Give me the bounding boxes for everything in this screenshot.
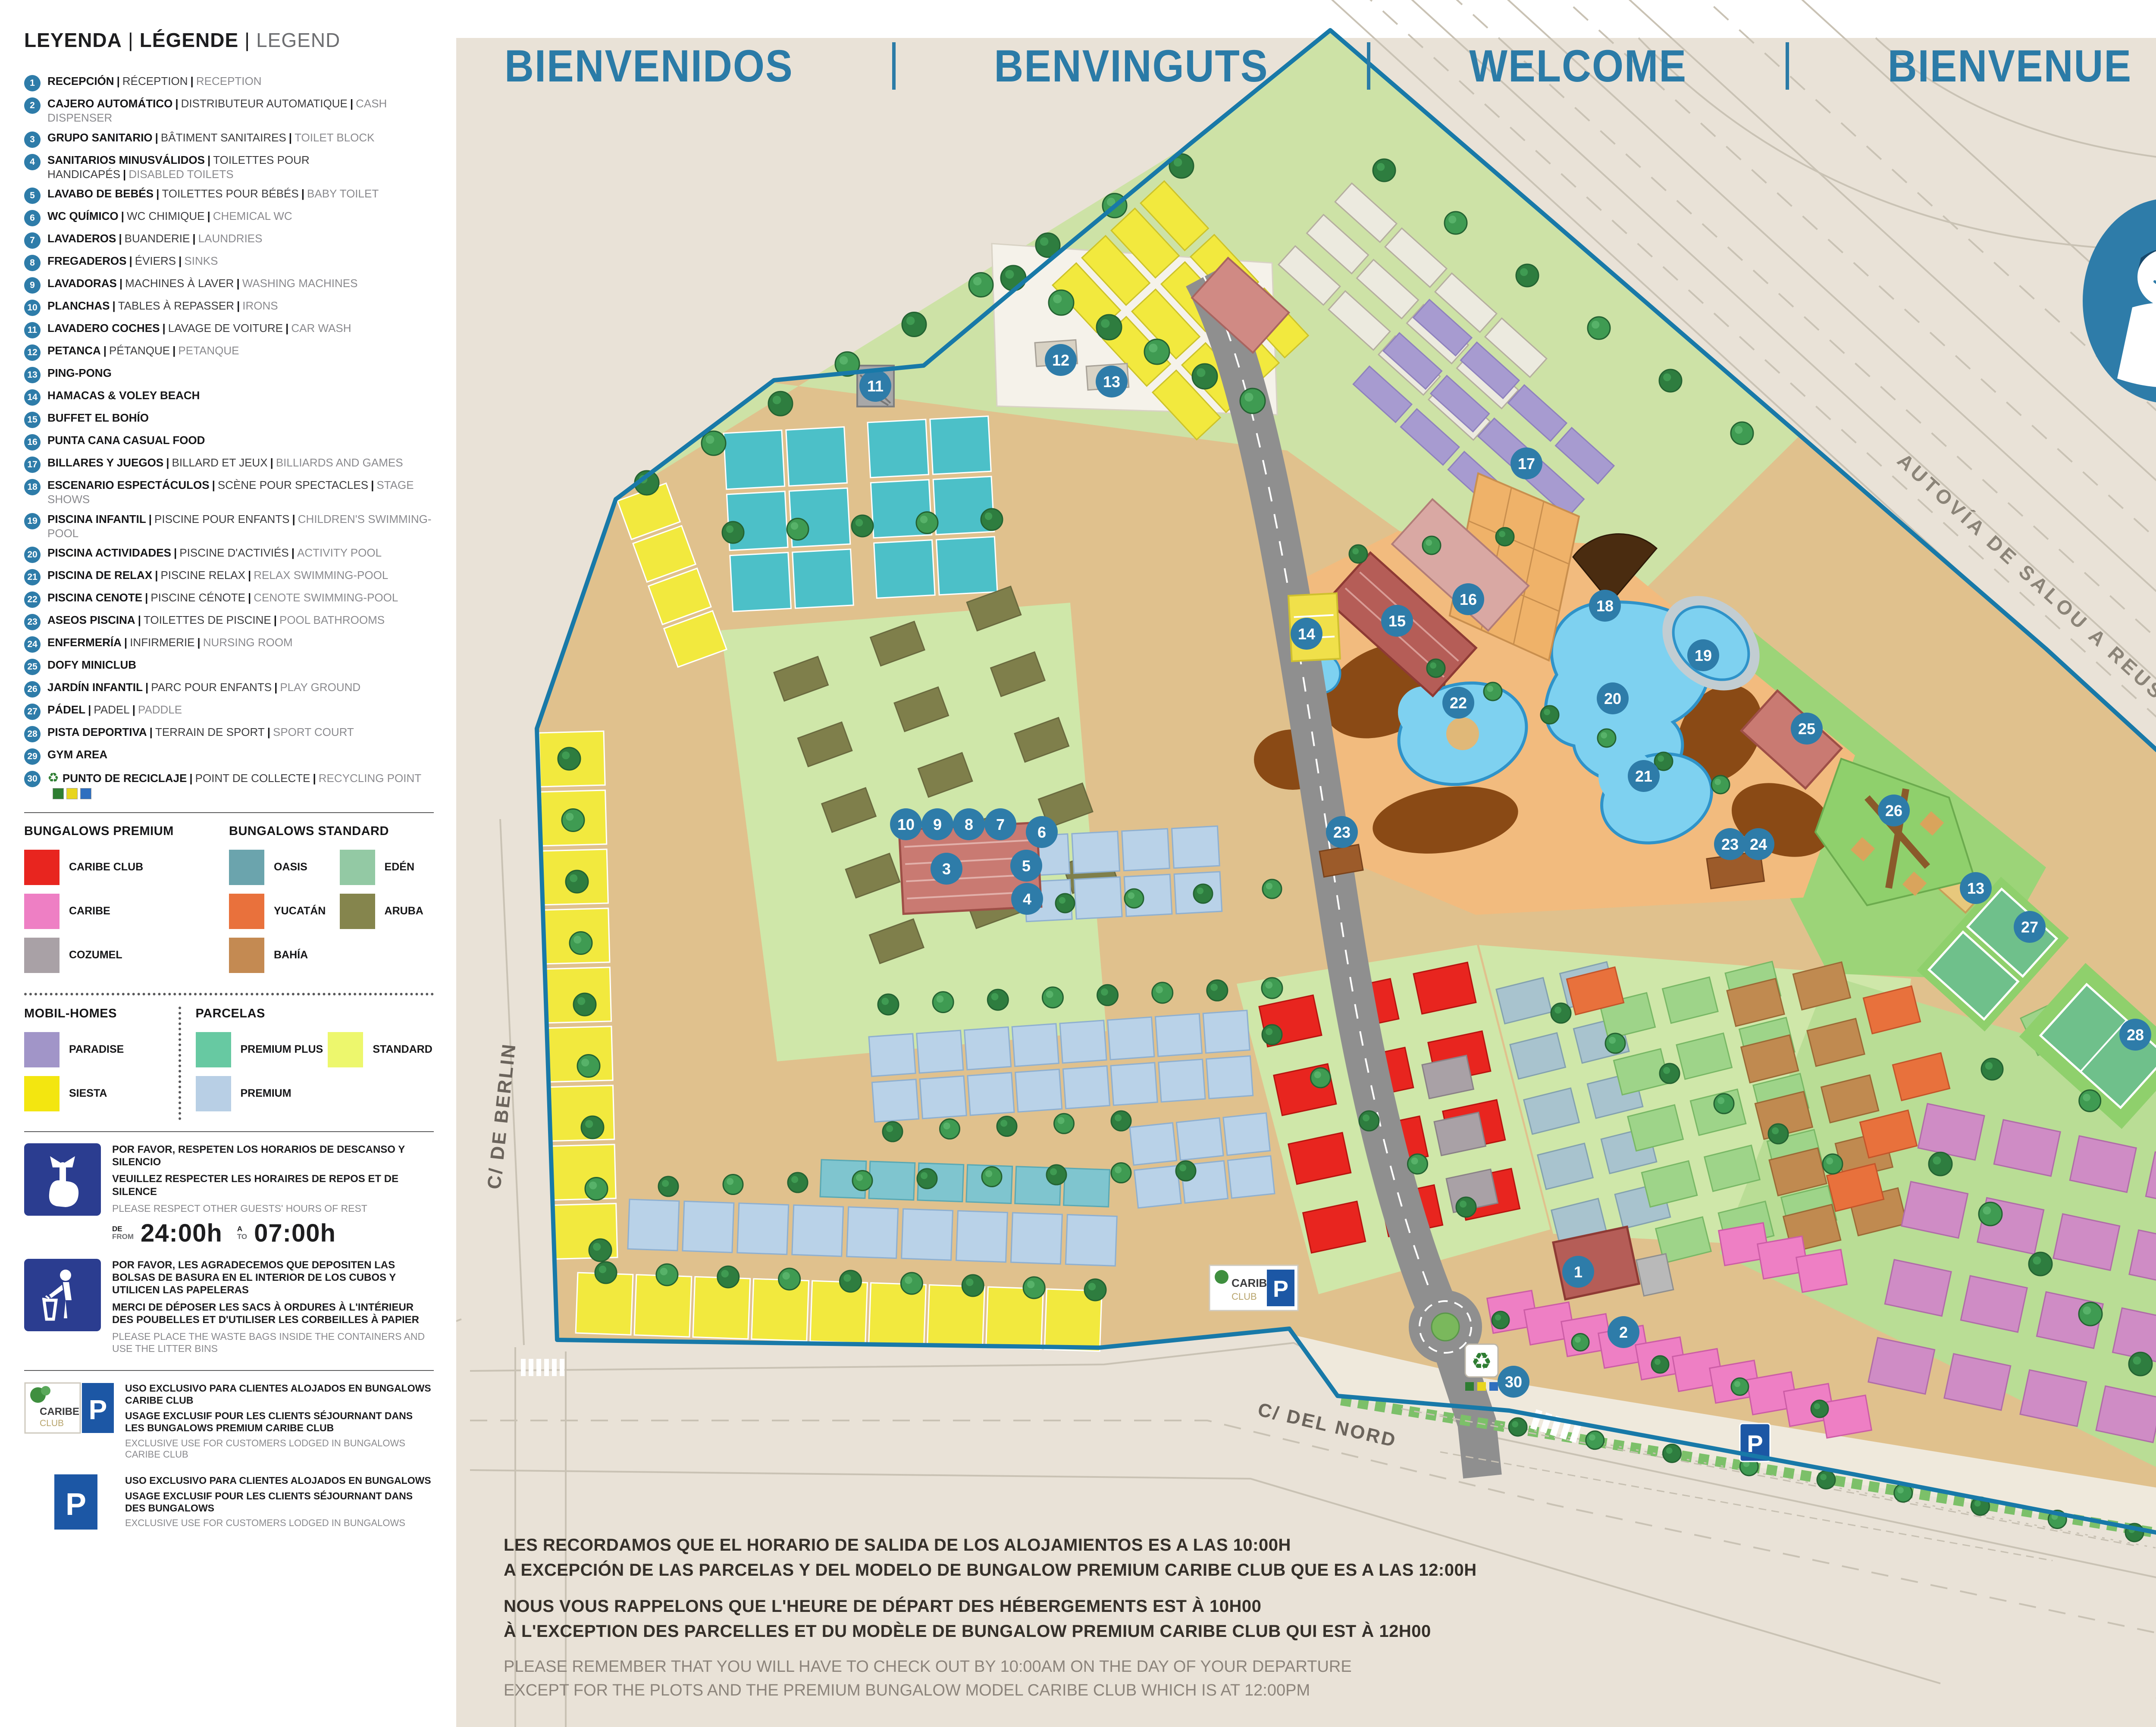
legend-item-number: 29 xyxy=(24,748,41,765)
map-marker-number: 1 xyxy=(1574,1263,1583,1281)
tree-icon xyxy=(1516,264,1539,287)
legend-item-number: 5 xyxy=(24,188,41,204)
siesta-logo-icon xyxy=(2081,197,2156,404)
legend-item-label: JARDÍN INFANTIL|PARC POUR ENFANTS|PLAY G… xyxy=(47,680,360,695)
map-marker-number: 14 xyxy=(1298,625,1315,643)
legend-list: 1RECEPCIÓN|RÉCEPTION|RECEPTION2CAJERO AU… xyxy=(24,74,434,801)
map-marker: 22 xyxy=(1442,687,1474,719)
bungalows-parking-rule: P USO EXCLUSIVO PARA CLIENTES ALOJADOS E… xyxy=(24,1474,434,1533)
tree-icon xyxy=(787,519,808,540)
legend-item-number: 6 xyxy=(24,210,41,226)
tree-icon xyxy=(779,1268,800,1290)
legend-item-number: 15 xyxy=(24,412,41,428)
color-swatch-label: BAHÍA xyxy=(274,949,308,961)
tree-icon xyxy=(2029,1252,2052,1276)
map-marker: 30 xyxy=(1498,1366,1529,1398)
legend-item-number: 27 xyxy=(24,704,41,720)
legend-item: 14HAMACAS & VOLEY BEACH xyxy=(24,388,434,406)
tree-icon xyxy=(981,509,1003,530)
map-marker: 6 xyxy=(1026,816,1058,848)
legend-item-label: ♻PUNTO DE RECICLAJE|POINT DE COLLECTE|RE… xyxy=(47,770,434,801)
tree-icon xyxy=(933,992,953,1013)
color-legend-row: CARIBE CLUB xyxy=(24,850,229,885)
map-marker: 20 xyxy=(1597,682,1629,714)
legend-item: 13PING-PONG xyxy=(24,366,434,383)
legend-item-label: PISCINA DE RELAX|PISCINE RELAX|RELAX SWI… xyxy=(47,568,388,582)
legend-item: 29GYM AREA xyxy=(24,748,434,765)
map-marker: 4 xyxy=(1011,883,1043,915)
tree-icon xyxy=(987,989,1008,1010)
tree-icon xyxy=(1660,1064,1680,1083)
legend-item-label: PETANCA|PÉTANQUE|PETANQUE xyxy=(47,344,239,358)
tree-icon xyxy=(1311,1068,1331,1088)
banner-word: BIENVENUE xyxy=(1888,40,2132,92)
map-marker: 24 xyxy=(1742,828,1774,860)
color-swatch xyxy=(24,1076,60,1111)
map-marker-number: 18 xyxy=(1596,597,1614,615)
tree-icon xyxy=(1262,1025,1282,1045)
legend-item-number: 1 xyxy=(24,75,41,91)
color-legend-row: PREMIUM PLUS xyxy=(196,1032,325,1067)
legend-item-label: PUNTA CANA CASUAL FOOD xyxy=(47,433,205,447)
tree-icon xyxy=(982,1167,1002,1187)
legend-item-label: CAJERO AUTOMÁTICO|DISTRIBUTEUR AUTOMATIQ… xyxy=(47,97,434,125)
legend-item-label: BUFFET EL BOHÍO xyxy=(47,411,149,425)
legend-item-label: PISCINA CENOTE|PISCINE CÉNOTE|CENOTE SWI… xyxy=(47,591,398,605)
legend-item-label: LAVADERO COCHES|LAVAGE DE VOITURE|CAR WA… xyxy=(47,321,351,335)
quiet-sign-icon xyxy=(24,1143,101,1248)
legend-item-number: 13 xyxy=(24,367,41,383)
quiet-en: PLEASE RESPECT OTHER GUESTS' HOURS OF RE… xyxy=(112,1202,434,1214)
tree-icon xyxy=(1240,388,1265,413)
leaf-icon xyxy=(1215,1270,1228,1284)
legend-item-number: 22 xyxy=(24,591,41,608)
tree-icon xyxy=(1981,1058,2003,1080)
tree-icon xyxy=(723,1175,743,1195)
map-marker-number: 24 xyxy=(1750,835,1767,853)
tree-icon xyxy=(1484,682,1502,701)
tree-icon xyxy=(558,748,580,770)
legend-item: 5LAVABO DE BEBÉS|TOILETTES POUR BÉBÉS|BA… xyxy=(24,187,434,204)
color-swatch-label: STANDARD xyxy=(373,1043,432,1056)
map-marker: 17 xyxy=(1510,447,1542,479)
legend-item-number: 17 xyxy=(24,457,41,473)
plot-cell xyxy=(1796,1250,1847,1292)
legend-item: 21PISCINA DE RELAX|PISCINE RELAX|RELAX S… xyxy=(24,568,434,585)
map-marker: 26 xyxy=(1878,795,1910,826)
map-marker-number: 6 xyxy=(1037,823,1046,841)
legend-item-label: LAVADORAS|MACHINES À LAVER|WASHING MACHI… xyxy=(47,276,357,291)
legend-item: 28PISTA DEPORTIVA|TERRAIN DE SPORT|SPORT… xyxy=(24,725,434,742)
map-marker: 25 xyxy=(1791,713,1823,745)
tree-icon xyxy=(997,1117,1017,1136)
legend-item-number: 25 xyxy=(24,659,41,675)
banner-word: WELCOME xyxy=(1469,40,1687,92)
legend-item: 2CAJERO AUTOMÁTICO|DISTRIBUTEUR AUTOMATI… xyxy=(24,97,434,125)
tree-icon xyxy=(2129,1352,2152,1376)
tree-icon xyxy=(1823,1154,1843,1174)
map-marker-number: 13 xyxy=(1967,879,1984,897)
tree-icon xyxy=(878,994,899,1015)
banner-separator xyxy=(1367,42,1370,90)
legend-item: 30♻PUNTO DE RECICLAJE|POINT DE COLLECTE|… xyxy=(24,770,434,801)
resort-map-poster: CARIBE CLUB P P ♻ AUTOVÍA DE SALOU A REU… xyxy=(0,0,2156,1727)
quiet-hours-notice: POR FAVOR, RESPETEN LOS HORARIOS DE DESC… xyxy=(24,1143,434,1248)
color-swatch-label: SIESTA xyxy=(69,1087,107,1100)
recycle-icon: ♻ xyxy=(47,771,59,785)
svg-text:P: P xyxy=(89,1394,107,1425)
legend-item: 4SANITARIOS MINUSVÁLIDOS|TOILETTES POUR … xyxy=(24,153,434,182)
legend-item: 18ESCENARIO ESPECTÁCULOS|SCÈNE POUR SPEC… xyxy=(24,478,434,507)
legend-item: 20PISCINA ACTIVIDADES|PISCINE D'ACTIVIÉS… xyxy=(24,546,434,563)
legend-item: 24ENFERMERÍA|INFIRMERIE|NURSING ROOM xyxy=(24,635,434,653)
legend-item: 17BILLARES Y JUEGOS|BILLARD ET JEUX|BILL… xyxy=(24,456,434,473)
legend-item-label: WC QUÍMICO|WC CHIMIQUE|CHEMICAL WC xyxy=(47,209,292,223)
legend-item-number: 9 xyxy=(24,277,41,294)
parking-sign-caribe: CARIBE CLUB P xyxy=(1210,1265,1298,1311)
tree-icon xyxy=(1659,369,1682,392)
legend-item-label: GRUPO SANITARIO|BÂTIMENT SANITAIRES|TOIL… xyxy=(47,131,375,145)
color-swatch xyxy=(24,1032,60,1067)
litter-sign-icon xyxy=(24,1259,101,1359)
legend-item: 7LAVADEROS|BUANDERIE|LAUNDRIES xyxy=(24,232,434,249)
tree-icon xyxy=(1049,290,1074,315)
checkout-en-line2: EXCEPT FOR THE PLOTS AND THE PREMIUM BUN… xyxy=(504,1680,1659,1701)
color-swatch xyxy=(340,850,375,885)
map-marker: 11 xyxy=(859,370,891,402)
legend-item: 19PISCINA INFANTIL|PISCINE POUR ENFANTS|… xyxy=(24,512,434,541)
tree-icon xyxy=(1711,776,1730,794)
tree-icon xyxy=(1714,1094,1734,1114)
color-swatch xyxy=(229,938,264,973)
tree-icon xyxy=(595,1262,617,1283)
svg-text:CLUB: CLUB xyxy=(40,1418,64,1428)
tree-icon xyxy=(1054,1114,1074,1133)
legend-item: 11LAVADERO COCHES|LAVAGE DE VOITURE|CAR … xyxy=(24,321,434,338)
tree-icon xyxy=(2079,1302,2102,1326)
plot-cell xyxy=(1821,1395,1872,1438)
legend-item-label: PLANCHAS|TABLES À REPASSER|IRONS xyxy=(47,299,278,313)
legend-sidebar: LEYENDA|LÉGENDE|LEGEND 1RECEPCIÓN|RÉCEPT… xyxy=(0,0,456,1727)
legend-item-number: 3 xyxy=(24,131,41,148)
svg-text:CLUB: CLUB xyxy=(1232,1291,1257,1302)
tree-icon xyxy=(1373,159,1395,181)
legend-item-number: 7 xyxy=(24,232,41,249)
legend-item-number: 28 xyxy=(24,726,41,742)
map-marker: 19 xyxy=(1687,639,1719,671)
legend-item: 27PÁDEL|PADEL|PADDLE xyxy=(24,703,434,720)
color-swatch-label: PARADISE xyxy=(69,1043,124,1056)
mobil-homes-title: MOBIL-HOMES xyxy=(24,1007,176,1021)
tree-icon xyxy=(1598,729,1616,747)
color-swatch-label: COZUMEL xyxy=(69,949,122,961)
map-marker-number: 9 xyxy=(933,816,942,833)
legend-item-label: PISCINA ACTIVIDADES|PISCINE D'ACTIVIÉS|A… xyxy=(47,546,382,560)
legend-item-label: SANITARIOS MINUSVÁLIDOS|TOILETTES POUR H… xyxy=(47,153,434,182)
legend-item-number: 23 xyxy=(24,614,41,630)
quiet-fr: VEUILLEZ RESPECTER LES HORAIRES DE REPOS… xyxy=(112,1173,434,1198)
tree-icon xyxy=(962,1275,984,1296)
tree-icon xyxy=(883,1122,903,1142)
map-marker-number: 17 xyxy=(1518,455,1535,472)
tree-icon xyxy=(1152,982,1173,1003)
recycling-point: ♻ xyxy=(1465,1344,1498,1391)
tree-icon xyxy=(1023,1277,1045,1298)
tree-icon xyxy=(1586,1431,1604,1449)
map-marker: 2 xyxy=(1608,1316,1639,1348)
tree-icon xyxy=(1359,1111,1379,1131)
tree-icon xyxy=(1731,1378,1749,1395)
tree-icon xyxy=(940,1119,960,1139)
map-marker: 10 xyxy=(890,808,922,840)
tree-icon xyxy=(840,1270,862,1292)
tree-icon xyxy=(1047,1165,1066,1185)
tree-icon xyxy=(1605,1033,1625,1053)
color-swatch xyxy=(196,1032,231,1067)
map-marker: 5 xyxy=(1010,850,1042,882)
map-marker-number: 23 xyxy=(1333,823,1351,841)
map-marker: 9 xyxy=(921,808,953,840)
tree-icon xyxy=(1408,1154,1428,1174)
map-marker-number: 26 xyxy=(1885,802,1902,820)
tree-icon xyxy=(1492,1311,1509,1329)
legend-item-number: 19 xyxy=(24,513,41,529)
map-marker-number: 2 xyxy=(1619,1323,1628,1341)
tree-icon xyxy=(1262,978,1282,998)
map-marker-number: 23 xyxy=(1721,835,1739,853)
map-marker-number: 5 xyxy=(1022,857,1031,875)
checkout-es-line2: A EXCEPCIÓN DE LAS PARCELAS Y DEL MODELO… xyxy=(504,1559,1659,1581)
quiet-from: 24:00h xyxy=(141,1219,222,1248)
tree-icon xyxy=(581,1116,604,1139)
tree-icon xyxy=(562,809,584,832)
map-marker-number: 3 xyxy=(942,860,951,878)
legend-item: 23ASEOS PISCINA|TOILETTES DE PISCINE|POO… xyxy=(24,613,434,630)
map-marker: 13 xyxy=(1096,366,1128,397)
waste-es: POR FAVOR, LES AGRADECEMOS QUE DEPOSITEN… xyxy=(112,1259,434,1297)
tree-icon xyxy=(788,1173,808,1192)
color-swatch xyxy=(328,1032,363,1067)
color-swatch-label: CARIBE CLUB xyxy=(69,861,143,873)
map-marker: 16 xyxy=(1452,583,1484,615)
legend-item-number: 8 xyxy=(24,255,41,271)
map-marker-number: 4 xyxy=(1023,890,1031,908)
legend-item: 22PISCINA CENOTE|PISCINE CÉNOTE|CENOTE S… xyxy=(24,591,434,608)
caribe-parking-rule: CARIBE CLUB P USO EXCLUSIVO PARA CLIENTE… xyxy=(24,1382,434,1464)
legend-item-number: 4 xyxy=(24,154,41,170)
color-legend-row: YUCATÁN xyxy=(229,894,336,929)
checkout-es-line1: LES RECORDAMOS QUE EL HORARIO DE SALIDA … xyxy=(504,1534,1659,1556)
legend-item-label: PISCINA INFANTIL|PISCINE POUR ENFANTS|CH… xyxy=(47,512,434,541)
tree-icon xyxy=(1456,1197,1476,1217)
tree-icon xyxy=(658,1176,678,1196)
checkout-en-line1: PLEASE REMEMBER THAT YOU WILL HAVE TO CH… xyxy=(504,1656,1659,1677)
map-marker: 12 xyxy=(1045,344,1077,376)
waste-notice: POR FAVOR, LES AGRADECEMOS QUE DEPOSITEN… xyxy=(24,1259,434,1359)
legend-item-number: 30 xyxy=(24,771,41,787)
map-marker: 14 xyxy=(1291,618,1322,650)
legend-item: 6WC QUÍMICO|WC CHIMIQUE|CHEMICAL WC xyxy=(24,209,434,226)
tree-icon xyxy=(916,512,938,534)
legend-item-label: DOFY MINICLUB xyxy=(47,658,136,672)
tree-icon xyxy=(1097,985,1118,1005)
waste-en: PLEASE PLACE THE WASTE BAGS INSIDE THE C… xyxy=(112,1330,434,1355)
tree-icon xyxy=(1929,1152,1952,1176)
legend-item-number: 16 xyxy=(24,434,41,451)
legend-item-label: ENFERMERÍA|INFIRMERIE|NURSING ROOM xyxy=(47,635,293,650)
tree-icon xyxy=(1445,212,1467,234)
map-marker-number: 19 xyxy=(1695,647,1712,664)
tree-icon xyxy=(566,870,588,893)
legend-item-number: 26 xyxy=(24,681,41,698)
color-legend-row: OASIS xyxy=(229,850,336,885)
legend-item-label: PISTA DEPORTIVA|TERRAIN DE SPORT|SPORT C… xyxy=(47,725,354,739)
banner-separator xyxy=(1786,42,1789,90)
checkout-fr-line1: NOUS VOUS RAPPELONS QUE L'HEURE DE DÉPAR… xyxy=(504,1595,1659,1617)
color-swatch-label: CARIBE xyxy=(69,905,110,917)
banner-word: BENVINGUTS xyxy=(994,40,1268,92)
legend-item-label: PÁDEL|PADEL|PADDLE xyxy=(47,703,182,717)
legend-item-label: ASEOS PISCINA|TOILETTES DE PISCINE|POOL … xyxy=(47,613,385,627)
legend-item-label: RECEPCIÓN|RÉCEPTION|RECEPTION xyxy=(47,74,262,88)
banner-separator xyxy=(892,42,896,90)
legend-item-label: FREGADEROS|ÉVIERS|SINKS xyxy=(47,254,218,268)
tree-icon xyxy=(1541,706,1559,724)
tree-icon xyxy=(702,431,726,455)
map-marker: 18 xyxy=(1589,590,1621,622)
tree-icon xyxy=(1423,536,1441,554)
resort-logo: LA SIESTA SALOU RESORT & CAMPING Relax a… xyxy=(2081,190,2156,491)
recycle-icon: ♻ xyxy=(1471,1348,1492,1374)
color-legend-row: PARADISE xyxy=(24,1032,176,1067)
legend-item-number: 20 xyxy=(24,547,41,563)
svg-text:CARIBE: CARIBE xyxy=(40,1406,79,1417)
tree-icon xyxy=(570,932,592,954)
legend-item: 9LAVADORAS|MACHINES À LAVER|WASHING MACH… xyxy=(24,276,434,294)
map-marker-number: 27 xyxy=(2021,918,2038,936)
tree-icon xyxy=(577,1055,600,1077)
tree-icon xyxy=(768,391,793,416)
color-legend-row: PREMIUM xyxy=(196,1076,325,1111)
tree-icon xyxy=(1001,266,1026,291)
map-marker-number: 28 xyxy=(2127,1026,2144,1044)
tree-icon xyxy=(1263,879,1282,898)
map-marker-number: 25 xyxy=(1798,720,1815,738)
tree-icon xyxy=(1111,1111,1131,1131)
map-marker: 23 xyxy=(1714,828,1746,860)
tree-icon xyxy=(1731,422,1753,444)
tree-icon xyxy=(1551,1003,1571,1023)
waste-fr: MERCI DE DÉPOSER LES SACS À ORDURES À L'… xyxy=(112,1301,434,1327)
map-marker: 15 xyxy=(1381,605,1413,637)
map-marker-number: 30 xyxy=(1505,1373,1522,1391)
bungalows-premium-title: BUNGALOWS PREMIUM xyxy=(24,824,229,838)
legend-item-label: LAVABO DE BEBÉS|TOILETTES POUR BÉBÉS|BAB… xyxy=(47,187,379,201)
tree-icon xyxy=(1811,1400,1828,1417)
legend-item-number: 21 xyxy=(24,569,41,585)
checkout-notice: LES RECORDAMOS QUE EL HORARIO DE SALIDA … xyxy=(504,1534,1659,1704)
legend-item-label: GYM AREA xyxy=(47,748,107,762)
legend-item: 8FREGADEROS|ÉVIERS|SINKS xyxy=(24,254,434,271)
map-marker: 8 xyxy=(953,808,985,840)
color-swatch xyxy=(24,938,60,973)
color-legend-row: COZUMEL xyxy=(24,938,229,973)
legend-title: LEYENDA|LÉGENDE|LEGEND xyxy=(24,28,434,52)
color-legend-row: SIESTA xyxy=(24,1076,176,1111)
parking-sign-icon: P xyxy=(24,1474,115,1533)
color-legend-row: ARUBA xyxy=(340,894,434,929)
map-marker-number: 11 xyxy=(867,377,884,395)
legend-item: 16PUNTA CANA CASUAL FOOD xyxy=(24,433,434,451)
legend-item-label: ESCENARIO ESPECTÁCULOS|SCÈNE POUR SPECTA… xyxy=(47,478,434,507)
map-marker: 13 xyxy=(1960,872,1992,904)
tree-icon xyxy=(1588,317,1610,339)
tree-icon xyxy=(1349,545,1367,563)
tree-icon xyxy=(718,1266,739,1288)
tree-icon xyxy=(1207,980,1228,1001)
legend-item-label: HAMACAS & VOLEY BEACH xyxy=(47,388,200,403)
color-swatch xyxy=(340,894,375,929)
color-swatch-label: EDÉN xyxy=(385,861,414,873)
tree-icon xyxy=(1111,1163,1131,1183)
legend-item: 1RECEPCIÓN|RÉCEPTION|RECEPTION xyxy=(24,74,434,91)
tree-icon xyxy=(1056,894,1075,913)
map-marker-number: 21 xyxy=(1635,767,1652,785)
tree-icon xyxy=(1572,1334,1589,1351)
tree-icon xyxy=(722,522,744,543)
map-marker-number: 15 xyxy=(1388,612,1406,630)
tree-icon xyxy=(917,1169,937,1189)
tree-icon xyxy=(969,273,993,297)
legend-item-label: LAVADEROS|BUANDERIE|LAUNDRIES xyxy=(47,232,262,246)
map-marker: 7 xyxy=(984,808,1016,840)
map-marker-number: 7 xyxy=(996,816,1005,833)
color-swatch xyxy=(24,894,60,929)
map-marker: 3 xyxy=(931,853,962,885)
tree-icon xyxy=(1194,884,1213,903)
tree-icon xyxy=(852,515,873,537)
legend-item-number: 2 xyxy=(24,97,41,114)
color-swatch-label: ARUBA xyxy=(385,905,423,917)
tree-icon xyxy=(1979,1202,2002,1226)
map-marker-number: 20 xyxy=(1604,690,1621,707)
tree-icon xyxy=(901,1273,922,1294)
tree-icon xyxy=(589,1239,611,1261)
map-marker: 23 xyxy=(1326,816,1358,848)
color-swatch-label: PREMIUM PLUS xyxy=(241,1043,323,1056)
tree-icon xyxy=(1768,1124,1788,1144)
quiet-es: POR FAVOR, RESPETEN LOS HORARIOS DE DESC… xyxy=(112,1143,434,1169)
color-swatch xyxy=(229,850,264,885)
color-swatch-label: PREMIUM xyxy=(241,1087,291,1100)
color-legend-row: EDÉN xyxy=(340,850,434,885)
tree-icon xyxy=(1651,1356,1669,1373)
tree-icon xyxy=(1097,315,1122,340)
color-legend-row: CARIBE xyxy=(24,894,229,929)
map-marker: 21 xyxy=(1628,760,1660,792)
map-marker-number: 8 xyxy=(965,816,973,833)
legend-item-label: BILLARES Y JUEGOS|BILLARD ET JEUX|BILLIA… xyxy=(47,456,403,470)
color-swatch-label: OASIS xyxy=(274,861,307,873)
tree-icon xyxy=(2079,1090,2101,1111)
tree-icon xyxy=(1663,1444,1681,1462)
tree-icon xyxy=(1509,1418,1527,1436)
tree-icon xyxy=(1125,889,1144,908)
parcelas-title: PARCELAS xyxy=(196,1007,434,1021)
tree-icon xyxy=(1496,528,1514,546)
svg-text:P: P xyxy=(1273,1276,1288,1302)
welcome-banner: BIENVENIDOSBENVINGUTSWELCOMEBIENVENUEWEL… xyxy=(505,42,2156,90)
